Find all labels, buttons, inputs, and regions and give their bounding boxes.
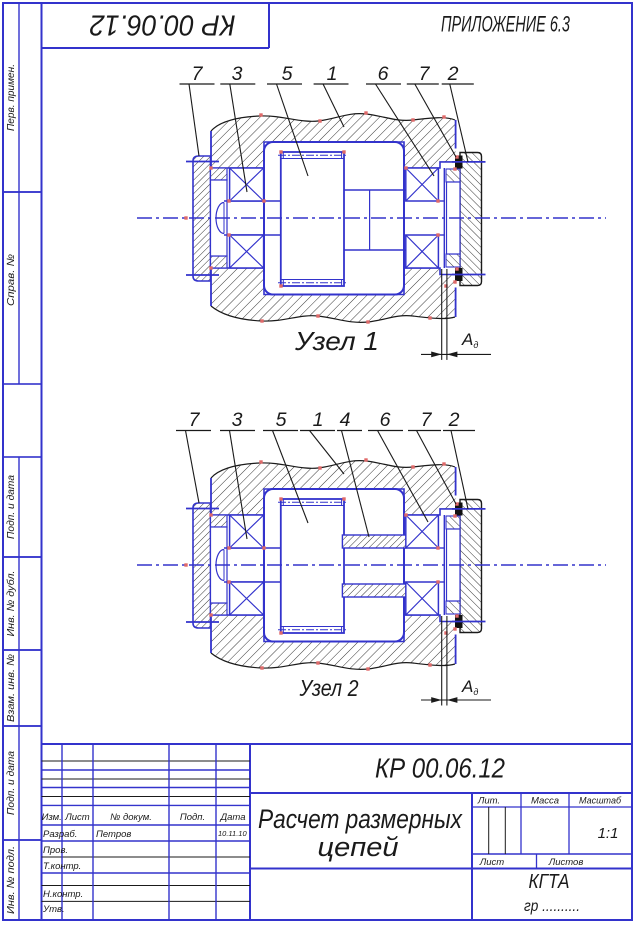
svg-text:Расчет размерных: Расчет размерных xyxy=(258,804,463,834)
svg-text:Утв.: Утв. xyxy=(42,904,65,915)
svg-text:Лит.: Лит. xyxy=(477,796,500,807)
svg-text:КР 00.06.12: КР 00.06.12 xyxy=(375,753,505,784)
svg-text:1: 1 xyxy=(313,409,324,431)
svg-text:Т.контр.: Т.контр. xyxy=(43,861,81,872)
svg-text:Подп.: Подп. xyxy=(180,812,205,823)
svg-text:Н.контр.: Н.контр. xyxy=(43,889,83,900)
svg-text:Взам. инв. №: Взам. инв. № xyxy=(5,654,17,722)
svg-text:№ докум.: № докум. xyxy=(110,812,152,823)
svg-text:Разраб.: Разраб. xyxy=(43,829,77,840)
svg-text:КР 00.06.12: КР 00.06.12 xyxy=(90,9,236,41)
svg-text:1: 1 xyxy=(327,63,338,85)
svg-text:Масса: Масса xyxy=(531,796,559,807)
svg-text:6: 6 xyxy=(380,409,391,431)
svg-text:Инв. № дубл.: Инв. № дубл. xyxy=(5,571,17,637)
svg-text:7: 7 xyxy=(419,63,431,85)
svg-text:Пров.: Пров. xyxy=(43,845,68,856)
svg-text:цепей: цепей xyxy=(318,832,399,862)
svg-text:Подп. и дата: Подп. и дата xyxy=(5,475,17,539)
svg-text:Лист: Лист xyxy=(64,812,90,823)
svg-text:5: 5 xyxy=(276,409,287,431)
svg-text:Дата: Дата xyxy=(219,812,245,823)
svg-text:4: 4 xyxy=(340,409,351,431)
svg-text:2: 2 xyxy=(447,63,459,85)
svg-text:7: 7 xyxy=(189,409,201,431)
svg-text:Справ. №: Справ. № xyxy=(5,254,17,306)
svg-text:2: 2 xyxy=(448,409,460,431)
svg-text:3: 3 xyxy=(232,63,243,85)
svg-text:Масштаб: Масштаб xyxy=(579,796,622,807)
svg-text:Петров: Петров xyxy=(96,829,131,840)
svg-text:10.11.10: 10.11.10 xyxy=(218,829,247,838)
svg-text:Перв. примен.: Перв. примен. xyxy=(5,64,17,131)
svg-text:Изм.: Изм. xyxy=(42,812,62,823)
svg-text:Подп. и дата: Подп. и дата xyxy=(5,751,17,815)
svg-text:Узел 1: Узел 1 xyxy=(294,326,379,356)
svg-text:КГТА: КГТА xyxy=(529,871,570,893)
svg-text:Листов: Листов xyxy=(548,857,584,868)
svg-text:ПРИЛОЖЕНИЕ 6.3: ПРИЛОЖЕНИЕ 6.3 xyxy=(441,12,570,37)
svg-text:7: 7 xyxy=(192,63,204,85)
svg-text:Узел 2: Узел 2 xyxy=(299,675,359,701)
svg-text:1:1: 1:1 xyxy=(598,825,619,842)
svg-text:Лист: Лист xyxy=(479,857,505,868)
svg-text:гр ..........: гр .......... xyxy=(524,898,580,915)
svg-text:Инв. № подл.: Инв. № подл. xyxy=(5,846,17,914)
svg-text:7: 7 xyxy=(421,409,433,431)
svg-text:6: 6 xyxy=(378,63,389,85)
svg-text:3: 3 xyxy=(232,409,243,431)
svg-text:5: 5 xyxy=(282,63,293,85)
